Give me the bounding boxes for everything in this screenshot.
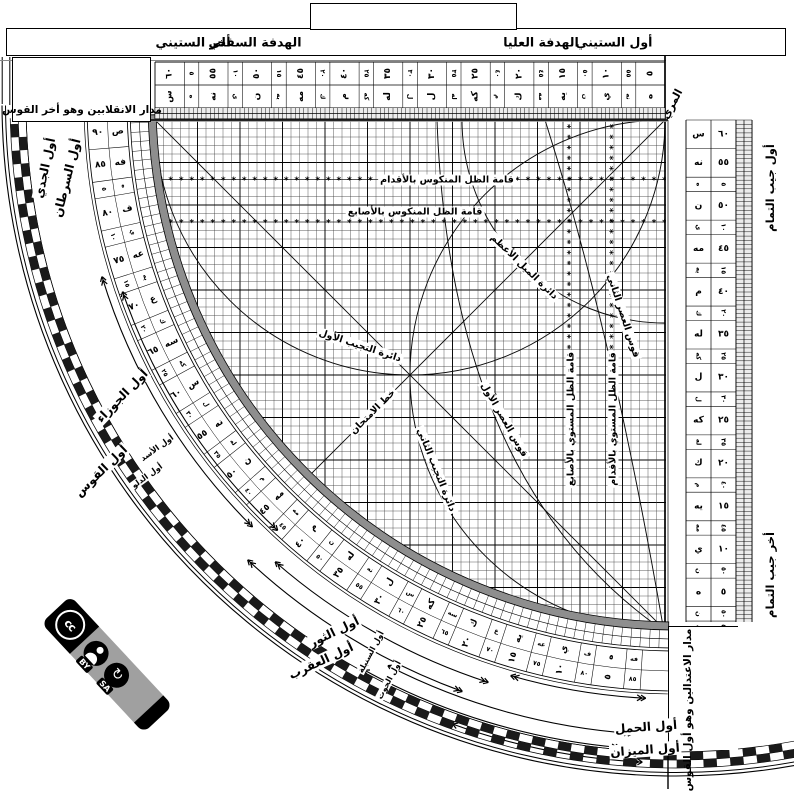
svg-text:٩٠: ٩٠	[92, 128, 104, 139]
svg-text:مه: مه	[695, 524, 703, 532]
svg-text:٥: ٥	[100, 187, 108, 192]
svg-text:ل: ل	[695, 373, 703, 383]
svg-text:ف: ف	[583, 650, 591, 658]
svg-text:٢٠: ٢٠	[319, 70, 327, 78]
svg-text:سه: سه	[163, 335, 180, 350]
svg-text:فه: فه	[630, 656, 638, 664]
svg-text:٤٥: ٤٥	[718, 244, 729, 254]
svg-text:نه: نه	[694, 158, 703, 168]
svg-text:ل: ل	[384, 576, 397, 588]
svg-text:ك: ك	[468, 618, 480, 629]
svg-text:يه: يه	[513, 633, 525, 644]
svg-text:له: له	[694, 330, 703, 340]
svg-text:٦٠: ٦٠	[169, 387, 184, 401]
label-solstice-orbit: مدار الانقلابين وهو أخر القوس	[2, 104, 162, 116]
svg-text:٢٠: ٢٠	[139, 324, 148, 334]
svg-text:يه: يه	[695, 267, 703, 273]
svg-text:س: س	[405, 589, 416, 599]
svg-text:٢٠: ٢٠	[514, 68, 524, 79]
svg-text:١٥: ١٥	[122, 279, 131, 289]
svg-text:ع: ع	[148, 293, 158, 305]
limb-degree-scale: ص٩٠فه٨٥ه٥ف٨٠ي١٠عه٧٥يه١٥ع٧٠ك٢٠سه٦٥كه٢٥س٦٠…	[87, 116, 642, 690]
svg-text:٥٠: ٥٠	[720, 567, 728, 575]
svg-text:٥٥: ٥٥	[354, 581, 364, 591]
svg-text:فه: فه	[114, 157, 126, 168]
svg-text:ل: ل	[427, 93, 437, 101]
svg-text:٢٥: ٢٥	[720, 352, 728, 360]
svg-text:ن: ن	[695, 568, 703, 574]
svg-text:٣٠: ٣٠	[406, 70, 414, 78]
svg-text:ك: ك	[514, 92, 524, 100]
svg-text:ي: ي	[695, 224, 703, 230]
svg-text:١٥: ١٥	[720, 266, 728, 274]
svg-text:٥٥: ٥٥	[718, 158, 729, 168]
svg-text:س: س	[165, 90, 175, 102]
svg-text:٦٥: ٦٥	[440, 628, 450, 638]
svg-text:له: له	[383, 92, 393, 101]
svg-text:ن: ن	[252, 92, 262, 100]
svg-text:٧٠: ٧٠	[485, 646, 495, 655]
svg-text:٣٥: ٣٥	[720, 438, 728, 446]
svg-text:٥: ٥	[720, 182, 728, 186]
svg-text:م: م	[695, 287, 702, 297]
svg-text:له: له	[344, 550, 357, 563]
svg-text:يه: يه	[275, 93, 283, 99]
svg-text:س: س	[692, 129, 704, 139]
svg-text:ي: ي	[602, 92, 612, 100]
svg-text:١٠: ١٠	[554, 663, 566, 676]
svg-text:١٠: ١٠	[231, 70, 239, 78]
label-level-shadow-feet: قامة الظل المستوي بالأقدام	[608, 350, 619, 487]
svg-text:٤٥: ٤٥	[296, 68, 306, 79]
svg-text:١٠: ١٠	[109, 232, 118, 241]
svg-text:م: م	[695, 483, 703, 488]
svg-text:ه: ه	[645, 94, 655, 99]
svg-text:٦٠: ٦٠	[165, 68, 175, 79]
svg-text:٤٠: ٤٠	[493, 70, 501, 78]
svg-text:٤٠: ٤٠	[243, 487, 253, 497]
svg-text:٤٠: ٤٠	[340, 68, 350, 79]
svg-text:٤٥: ٤٥	[720, 524, 728, 532]
svg-text:٣٥: ٣٥	[332, 565, 347, 580]
svg-text:٤٠: ٤٠	[293, 535, 308, 550]
svg-text:٥: ٥	[603, 674, 614, 681]
svg-text:٤٠: ٤٠	[720, 481, 728, 489]
svg-text:له: له	[450, 93, 458, 99]
svg-text:٢٥: ٢٥	[416, 615, 430, 629]
svg-text:ص: ص	[111, 126, 124, 137]
svg-text:٥٥: ٥٥	[625, 70, 633, 78]
svg-text:مه: مه	[272, 488, 287, 503]
svg-text:٥: ٥	[188, 72, 196, 76]
label-level-shadow-digits: قامة الظل المستوي بالأصابع	[566, 350, 577, 488]
svg-text:ف: ف	[121, 203, 133, 215]
svg-text:٢٠: ٢٠	[718, 459, 729, 469]
cosine-scale: س٦٠نه٥٥ه٥ن٥٠ي١٠مه٤٥يه١٥م٤٠ك٢٠له٣٥كه٢٥ل٣٠…	[665, 56, 752, 632]
svg-text:مه: مه	[537, 93, 545, 101]
svg-text:كه: كه	[177, 359, 187, 369]
label-awwal-sittini: أول الستيني	[576, 35, 653, 50]
svg-text:٧٥: ٧٥	[112, 254, 125, 267]
svg-text:٥٠: ٥٠	[252, 68, 262, 79]
label-equinox-orbit: مدار الاعتدالين وهو أول القوس	[682, 629, 694, 792]
svg-text:٢٥: ٢٥	[362, 70, 370, 78]
svg-text:ه: ه	[695, 182, 703, 186]
svg-text:٢٥: ٢٥	[718, 416, 729, 426]
svg-text:ك: ك	[319, 94, 327, 100]
svg-text:٣٠: ٣٠	[720, 395, 728, 403]
svg-text:٢٥: ٢٥	[471, 68, 481, 79]
label-reversed-shadow-feet: قامة الظل المنكوس بالأقدام	[378, 175, 516, 186]
svg-text:سه: سه	[447, 609, 459, 619]
svg-text:٥٠: ٥٠	[581, 70, 589, 78]
svg-text:نه: نه	[625, 93, 633, 99]
svg-text:ن: ن	[581, 94, 589, 100]
svg-text:٥٠: ٥٠	[718, 201, 729, 211]
svg-text:١٥: ١٥	[507, 651, 520, 664]
svg-text:******************************: ****************************************…	[147, 219, 672, 229]
svg-text:٤٠: ٤٠	[718, 287, 729, 297]
svg-text:ي: ي	[231, 94, 239, 100]
svg-text:يه: يه	[558, 92, 568, 101]
svg-text:٢٥: ٢٥	[159, 368, 169, 378]
svg-text:٨٠: ٨٠	[580, 670, 589, 678]
svg-text:٥٠: ٥٠	[720, 610, 728, 618]
svg-text:١٥: ١٥	[558, 68, 568, 79]
svg-text:٥٠: ٥٠	[314, 553, 324, 563]
label-cosine-end: أخر جيب التمام	[763, 532, 777, 618]
label-akhir-sittini: أخر الستيني	[155, 35, 230, 50]
svg-text:٣٠: ٣٠	[718, 373, 729, 383]
svg-text:٥: ٥	[721, 587, 727, 597]
svg-text:عه: عه	[131, 249, 145, 262]
svg-text:ع: ع	[493, 627, 500, 635]
svg-text:ي: ي	[559, 645, 570, 655]
svg-text:له: له	[228, 438, 237, 447]
svg-text:ك: ك	[694, 459, 702, 469]
sixty-scale: ٥ه٥٥نه١٠ي٥٠ن١٥يه٤٥مه٢٠ك٤٠م٢٥كه٣٥له٣٠ل٣٠ل…	[150, 62, 668, 122]
svg-text:٣٥: ٣٥	[450, 70, 458, 78]
label-hadafa-ulya: الهدفة العليا	[503, 35, 579, 50]
svg-text:٧٥: ٧٥	[532, 660, 541, 669]
svg-text:كه: كه	[362, 93, 370, 101]
svg-text:٣٠: ٣٠	[373, 592, 387, 607]
svg-text:س: س	[186, 377, 202, 392]
svg-text:١٠: ١٠	[718, 544, 729, 554]
svg-text:مه: مه	[296, 91, 306, 102]
svg-text:م: م	[340, 93, 350, 100]
svg-text:١٠: ١٠	[602, 68, 612, 79]
svg-text:نه: نه	[208, 92, 218, 101]
svg-text:كه: كه	[693, 416, 704, 426]
svg-text:٣٥: ٣٥	[212, 450, 222, 460]
svg-text:ن: ن	[695, 611, 703, 617]
svg-text:م: م	[308, 522, 320, 534]
svg-text:م: م	[259, 475, 268, 483]
svg-text:له: له	[695, 439, 703, 445]
svg-text:٨٥: ٨٥	[94, 159, 106, 170]
label-reversed-shadow-digits: قامة الظل المنكوس بالأصابع	[346, 207, 485, 218]
svg-text:مه: مه	[291, 507, 301, 517]
svg-text:ه: ه	[120, 184, 128, 189]
svg-text:ن: ن	[328, 538, 337, 547]
svg-text:يه: يه	[694, 502, 703, 512]
svg-text:مه: مه	[693, 244, 704, 254]
svg-text:ل: ل	[695, 396, 703, 402]
svg-text:٦٠: ٦٠	[396, 607, 406, 617]
svg-text:٨٠: ٨٠	[101, 207, 114, 219]
svg-text:٥٠: ٥٠	[225, 466, 240, 481]
svg-text:٣٥: ٣٥	[718, 330, 729, 340]
svg-text:ك: ك	[695, 310, 703, 316]
svg-text:٣٠: ٣٠	[184, 410, 194, 420]
label-cosine-start: أول جيب التمام	[763, 144, 777, 232]
svg-text:ل: ل	[406, 94, 414, 100]
svg-text:١٠: ١٠	[720, 223, 728, 231]
svg-text:٤٥: ٤٥	[277, 522, 288, 532]
sight-tab	[310, 3, 517, 30]
sine-quadrant-diagram: ص٩٠فه٨٥ه٥ف٨٠ي١٠عه٧٥يه١٥ع٧٠ك٢٠سه٦٥كه٢٥س٦٠…	[0, 0, 794, 794]
svg-text:كه: كه	[695, 352, 703, 360]
svg-text:٦٥: ٦٥	[146, 344, 160, 358]
svg-text:ه: ه	[188, 95, 196, 99]
svg-text:ل: ل	[201, 400, 210, 408]
sighting-bar	[6, 28, 786, 56]
svg-text:٦٠: ٦٠	[718, 129, 729, 139]
svg-text:ي: ي	[128, 229, 136, 236]
svg-text:ه: ه	[696, 587, 701, 597]
svg-text:ن: ن	[241, 454, 254, 467]
svg-text:٤٥: ٤٥	[258, 502, 273, 517]
svg-text:ن: ن	[695, 201, 703, 211]
svg-text:ك: ك	[157, 317, 166, 325]
svg-text:عه: عه	[537, 640, 547, 649]
svg-text:٥٥: ٥٥	[208, 68, 218, 79]
svg-text:٥٥: ٥٥	[195, 428, 210, 443]
svg-text:٣٠: ٣٠	[427, 68, 437, 79]
svg-text:٥: ٥	[645, 71, 655, 77]
svg-text:م: م	[493, 94, 501, 99]
svg-text:١٥: ١٥	[718, 502, 729, 512]
svg-text:ه: ه	[605, 654, 616, 660]
svg-text:نه: نه	[365, 565, 374, 574]
svg-text:٢٠: ٢٠	[460, 635, 473, 649]
svg-text:٢٠: ٢٠	[720, 309, 728, 317]
svg-text:كه: كه	[471, 90, 481, 101]
svg-text:٤٥: ٤٥	[537, 70, 545, 78]
svg-text:نه: نه	[212, 417, 225, 430]
svg-text:ي: ي	[694, 544, 702, 554]
svg-text:٣٥: ٣٥	[383, 68, 393, 79]
svg-text:يه: يه	[141, 273, 150, 281]
svg-text:٨٥: ٨٥	[628, 676, 636, 684]
svg-text:١٥: ١٥	[275, 70, 283, 78]
svg-text:كه: كه	[424, 597, 438, 612]
